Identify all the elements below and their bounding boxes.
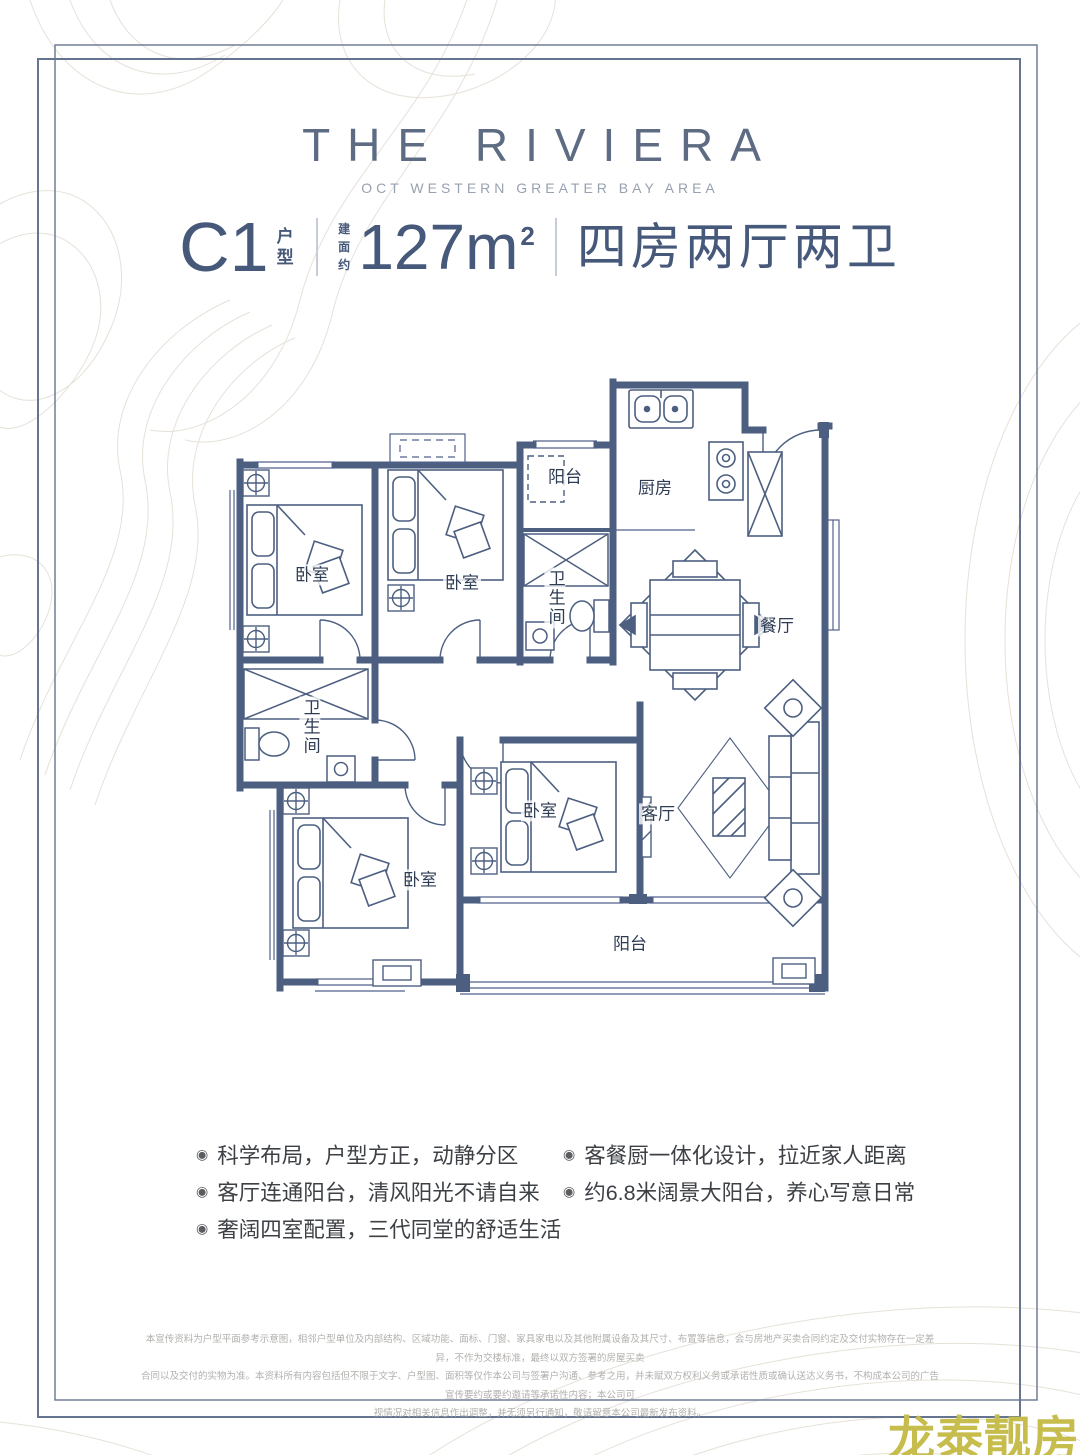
bullet-icon: ◉ <box>196 1220 208 1237</box>
disclaimer-line: 视情况对相关信息作出调整，并无须另行通知，敬请留意本公司最新发布资料。 <box>140 1405 940 1424</box>
feature-column-left: ◉ 科学布局，户型方正，动静分区 ◉ 客厅连通阳台，清风阳光不请自来 ◉ 奢阔四… <box>196 1136 561 1247</box>
area-number: 127m <box>358 211 518 283</box>
brand-subtitle: OCT WESTERN GREATER BAY AREA <box>0 180 1080 196</box>
bullet-icon: ◉ <box>196 1183 208 1200</box>
feature-text: 科学布局，户型方正，动静分区 <box>217 1139 518 1170</box>
sofa-icon <box>678 680 821 927</box>
coffee-table-icon <box>713 778 745 836</box>
brand-block: THE RIVIERA OCT WESTERN GREATER BAY AREA <box>0 118 1080 196</box>
bathroom-1-fixtures <box>524 534 609 650</box>
room-label-bedroom-2: 卧室 <box>443 572 481 593</box>
layout-text: 四房两厅两卫 <box>577 222 901 272</box>
room-label-bedroom-4: 卧室 <box>521 800 559 821</box>
bullet-icon: ◉ <box>563 1146 575 1163</box>
unit-suffix: 户型 <box>277 226 297 269</box>
room-label-dining: 餐厅 <box>758 615 796 636</box>
unit-code: C1 <box>179 212 268 282</box>
area-sup: 2 <box>520 221 534 251</box>
disclaimer-line: 本宣传资料为户型平面参考示意图，相邻户型单位及内部结构、区域功能、面标、门窗、家… <box>140 1331 940 1368</box>
feature-item: ◉ 客厅连通阳台，清风阳光不请自来 <box>196 1173 561 1210</box>
kitchen-sink-icon <box>629 390 693 428</box>
headline-divider <box>316 218 318 276</box>
bullet-icon: ◉ <box>196 1146 208 1163</box>
feature-text: 约6.8米阔景大阳台，养心写意日常 <box>584 1176 915 1207</box>
poster-page: THE RIVIERA OCT WESTERN GREATER BAY AREA… <box>0 0 1080 1455</box>
feature-text: 奢阔四室配置，三代同堂的舒适生活 <box>217 1213 561 1244</box>
fridge-cabinet-icon <box>748 452 782 536</box>
headline: C1 户型 建面约 127m2 四房两厅两卫 <box>0 212 1080 282</box>
feature-item: ◉ 科学布局，户型方正，动静分区 <box>196 1136 561 1173</box>
bullet-icon: ◉ <box>563 1183 575 1200</box>
disclaimer-line: 合同以及交付的实物为准。本资料所有内容包括但不限于文字、户型图、面积等仅作本公司… <box>140 1368 940 1405</box>
feature-column-right: ◉ 客餐厨一体化设计，拉近家人距离 ◉ 约6.8米阔景大阳台，养心写意日常 <box>563 1136 915 1210</box>
watermark: 龙泰靓房 <box>888 1400 1080 1455</box>
room-label-balcony-top: 阳台 <box>546 466 584 487</box>
headline-divider <box>555 218 557 276</box>
room-label-balcony-bottom: 阳台 <box>611 933 649 954</box>
brand-title: THE RIVIERA <box>0 118 1080 172</box>
dining-table-icon <box>620 550 770 700</box>
disclaimer: 本宣传资料为户型平面参考示意图，相邻户型单位及内部结构、区域功能、面标、门窗、家… <box>140 1331 940 1424</box>
area-value: 127m2 <box>358 215 535 279</box>
room-label-bedroom-1: 卧室 <box>293 564 331 585</box>
floorplan-drawing <box>225 370 865 1010</box>
feature-item: ◉ 奢阔四室配置，三代同堂的舒适生活 <box>196 1210 561 1247</box>
room-label-living: 客厅 <box>639 803 677 824</box>
feature-item: ◉ 客餐厨一体化设计，拉近家人距离 <box>563 1136 915 1173</box>
room-label-kitchen: 厨房 <box>636 477 674 498</box>
area-prefix: 建面约 <box>338 220 351 274</box>
room-label-bathroom-2: 卫生间 <box>299 697 320 758</box>
room-label-bedroom-3: 卧室 <box>401 869 439 890</box>
feature-text: 客厅连通阳台，清风阳光不请自来 <box>217 1176 540 1207</box>
room-label-bathroom-1: 卫生间 <box>544 568 565 629</box>
feature-text: 客餐厨一体化设计，拉近家人距离 <box>584 1139 907 1170</box>
floorplan: 阳台 厨房 卧室 卧室 卫生间 餐厅 卫生间 卧室 卧室 客厅 阳台 <box>225 370 865 1010</box>
feature-item: ◉ 约6.8米阔景大阳台，养心写意日常 <box>563 1173 915 1210</box>
stove-icon <box>709 442 743 500</box>
